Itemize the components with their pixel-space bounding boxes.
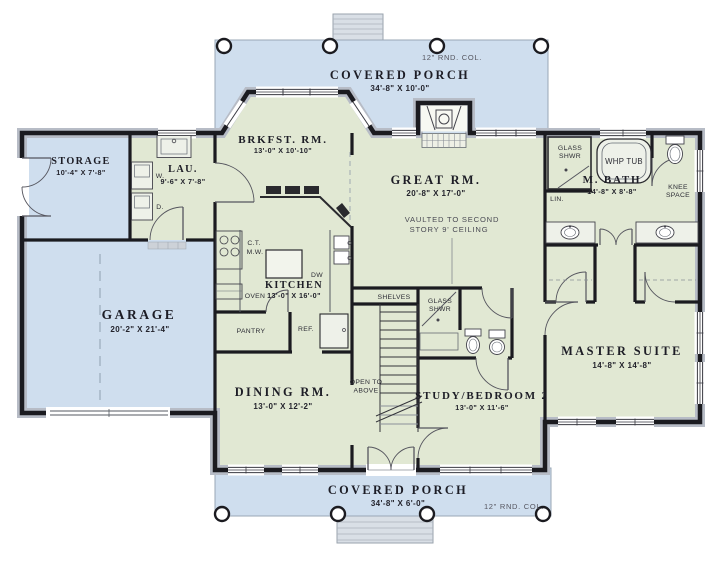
right-wall-window-3	[695, 362, 706, 404]
porch-column	[420, 507, 434, 521]
kitchen-dims: 13'-0" X 16'-0"	[267, 291, 321, 300]
dining-dims: 13'-0" X 12'-2"	[253, 402, 312, 411]
breakfast-dims: 13'-0" X 10'-10"	[254, 146, 312, 155]
bottom-porch-label: COVERED PORCH	[328, 483, 468, 497]
garage-label: GARAGE	[102, 307, 177, 322]
study-window	[440, 465, 532, 476]
great-room-window-right	[476, 128, 536, 139]
whirlpool-tub-label: WHP TUB	[605, 157, 643, 166]
dryer-box	[132, 193, 153, 220]
microwave-label: M.W.	[247, 249, 264, 256]
study-dims: 13'-0" X 11'-6"	[455, 403, 508, 412]
right-wall-window-2	[695, 312, 706, 354]
porch-column	[215, 507, 229, 521]
porch-column	[323, 39, 337, 53]
great-room-window-left	[392, 128, 416, 139]
open-to-above-line1: OPEN TO	[350, 379, 382, 386]
master-shower-label2: SHWR	[559, 153, 581, 160]
porch-column	[331, 507, 345, 521]
refrigerator-label: REF.	[298, 326, 314, 333]
breakfast-label: BRKFST. RM.	[238, 134, 328, 146]
great-room-dims: 20'-8" X 17'-0"	[406, 189, 465, 198]
top-porch-label: COVERED PORCH	[330, 68, 470, 82]
vaulted-note-line1: VAULTED TO SECOND	[405, 215, 499, 224]
porch-column	[217, 39, 231, 53]
cooktop-label: C.T.	[247, 240, 260, 247]
vanity-left	[546, 222, 595, 243]
bar-stool	[304, 186, 319, 194]
washer-box	[132, 162, 153, 189]
great-room-label: GREAT RM.	[391, 173, 482, 187]
garage-dims: 20'-2" X 21'-4"	[110, 325, 169, 334]
dishwasher-label: DW	[311, 272, 323, 279]
garage-door-opening	[46, 407, 170, 419]
knee-space-label1: KNEE	[668, 184, 688, 191]
porch-column	[430, 39, 444, 53]
kitchen-label: KITCHEN	[265, 280, 323, 291]
master-suite-label: MASTER SUITE	[561, 344, 682, 358]
top-porch-column-note: 12" RND. COL.	[422, 53, 482, 62]
bar-stool	[266, 186, 281, 194]
master-toilet-fixture	[666, 136, 684, 164]
study-bath-shower-label1: GLASS	[428, 298, 452, 305]
dining-label: DINING RM.	[235, 385, 331, 399]
storage-dims: 10'-4" X 7'-8"	[56, 168, 105, 177]
vanity-right	[636, 222, 698, 243]
open-to-above-line2: ABOVE	[354, 388, 379, 395]
study-label: STUDY/BEDROOM 2	[415, 390, 549, 402]
floor-plan: 12" RND. COL. COVERED PORCH 34'-8" X 10'…	[0, 0, 725, 567]
master-bath-window	[600, 128, 646, 139]
master-shower-label1: GLASS	[558, 145, 582, 152]
porch-steps-bottom	[337, 516, 433, 543]
dining-window-2	[282, 465, 318, 476]
washer-label: W.	[156, 173, 165, 180]
fireplace	[421, 106, 467, 148]
bottom-porch-column-note: 12" RND. COL.	[484, 502, 544, 511]
porch-steps-top	[333, 14, 383, 41]
dining-window-1	[228, 465, 264, 476]
study-bath-sink	[489, 330, 505, 355]
master-bath-label: M. BATH	[583, 174, 642, 186]
storage-label: STORAGE	[51, 156, 110, 167]
laundry-sink	[157, 136, 191, 158]
master-suite-dims: 14'-8" X 14'-8"	[592, 361, 651, 370]
bottom-porch-dims: 34'-8" X 6'-0"	[371, 499, 425, 508]
vaulted-note-line2: STORY 9' CEILING	[410, 225, 489, 234]
dryer-label: D.	[156, 204, 163, 211]
refrigerator-fixture	[320, 314, 348, 348]
porch-column	[534, 39, 548, 53]
pantry-label: PANTRY	[237, 328, 266, 335]
master-window-1	[558, 417, 596, 428]
right-wall-window-1	[695, 150, 706, 192]
study-bath-shower-label2: SHWR	[429, 306, 451, 313]
oven-label: OVEN	[245, 293, 265, 300]
laundry-label: LAU.	[168, 164, 198, 175]
master-bath-dims: 14'-8" X 8'-8"	[587, 187, 636, 196]
laundry-step-hatch	[148, 242, 186, 249]
knee-space-label2: SPACE	[666, 192, 690, 199]
breakfast-bay-window	[256, 87, 338, 98]
linen-label: LIN.	[550, 196, 564, 203]
kitchen-island	[266, 250, 302, 278]
master-window-2	[616, 417, 654, 428]
laundry-dims: 9'-6" X 7'-8"	[161, 177, 206, 186]
shelves-label: SHELVES	[378, 294, 411, 301]
bar-stool	[285, 186, 300, 194]
top-porch-dims: 34'-8" X 10'-0"	[370, 84, 429, 93]
study-bath-toilet	[465, 329, 481, 354]
